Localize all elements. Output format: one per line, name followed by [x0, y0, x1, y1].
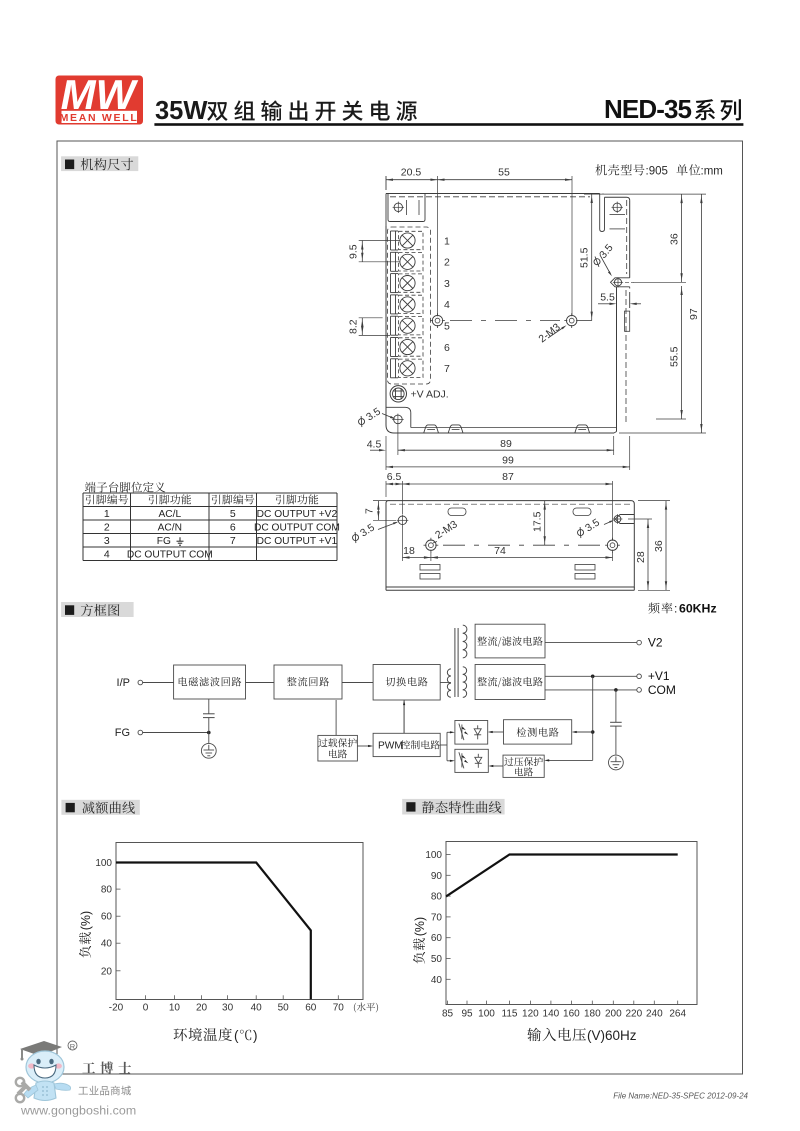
svg-text:100: 100 — [478, 1009, 495, 1020]
svg-text:AC/L: AC/L — [158, 509, 181, 520]
svg-text:70: 70 — [431, 912, 443, 923]
svg-text:(%): (%) — [79, 911, 93, 930]
svg-text:(: ( — [234, 1028, 239, 1043]
svg-text:4.5: 4.5 — [367, 439, 382, 451]
svg-text:R: R — [70, 1042, 76, 1051]
svg-text:1: 1 — [444, 235, 450, 247]
svg-text:55.5: 55.5 — [669, 346, 681, 367]
svg-text:5: 5 — [444, 321, 450, 333]
svg-text:40: 40 — [251, 1003, 263, 1014]
svg-text:+V1: +V1 — [648, 669, 670, 683]
svg-text:50: 50 — [431, 954, 443, 965]
svg-text:85: 85 — [442, 1009, 454, 1020]
svg-text:100: 100 — [95, 858, 112, 869]
svg-text:DC OUTPUT COM: DC OUTPUT COM — [254, 523, 340, 534]
svg-text:DC OUTPUT +V2: DC OUTPUT +V2 — [257, 509, 338, 520]
svg-text:4: 4 — [444, 299, 450, 311]
svg-text:220: 220 — [625, 1009, 642, 1020]
svg-text:20.5: 20.5 — [401, 167, 422, 179]
svg-text:FG: FG — [157, 536, 171, 547]
svg-text:I/P: I/P — [117, 677, 130, 689]
svg-text:30: 30 — [222, 1003, 234, 1014]
svg-text:264: 264 — [669, 1009, 686, 1020]
svg-text:140: 140 — [543, 1009, 560, 1020]
svg-text:180: 180 — [584, 1009, 601, 1020]
svg-text:18: 18 — [403, 545, 415, 557]
svg-text:70: 70 — [333, 1003, 345, 1014]
svg-text:36: 36 — [653, 540, 665, 552]
svg-text:100: 100 — [425, 850, 442, 861]
svg-text:95: 95 — [461, 1009, 473, 1020]
svg-text:17.5: 17.5 — [532, 511, 544, 532]
svg-text:DC OUTPUT COM: DC OUTPUT COM — [127, 550, 213, 561]
svg-text:60: 60 — [431, 933, 443, 944]
svg-text:55: 55 — [498, 167, 510, 179]
svg-text:6.5: 6.5 — [387, 471, 402, 483]
svg-text:40: 40 — [101, 939, 113, 950]
svg-text:20: 20 — [196, 1003, 208, 1014]
svg-text:89: 89 — [500, 438, 512, 450]
svg-text:2: 2 — [444, 257, 450, 269]
svg-text:28: 28 — [635, 551, 647, 563]
svg-text:5.5: 5.5 — [600, 292, 615, 304]
svg-text:COM: COM — [648, 683, 676, 697]
svg-text:File Name:NED-35-SPEC 2012-09: File Name:NED-35-SPEC 2012-09-24 — [613, 1092, 748, 1101]
svg-text:www.gongboshi.com: www.gongboshi.com — [20, 1104, 136, 1118]
svg-text:50: 50 — [278, 1003, 290, 1014]
svg-text::mm: :mm — [701, 166, 723, 178]
svg-text:3.5: 3.5 — [358, 521, 377, 539]
svg-text:160: 160 — [563, 1009, 580, 1020]
svg-text:74: 74 — [494, 545, 506, 557]
svg-text:7: 7 — [364, 508, 376, 514]
svg-text:60: 60 — [305, 1003, 317, 1014]
svg-text:3: 3 — [104, 535, 110, 547]
svg-text:7: 7 — [444, 363, 450, 375]
svg-text:51.5: 51.5 — [579, 247, 591, 268]
svg-text:+V ADJ.: +V ADJ. — [411, 389, 449, 401]
svg-text:7: 7 — [230, 535, 236, 547]
svg-text:3.5: 3.5 — [597, 242, 616, 261]
svg-text:2-M3: 2-M3 — [536, 321, 562, 345]
svg-text:9.5: 9.5 — [348, 244, 360, 259]
svg-text:DC OUTPUT +V1: DC OUTPUT +V1 — [257, 536, 338, 547]
svg-text:MEAN WELL: MEAN WELL — [60, 112, 139, 124]
svg-text:1: 1 — [104, 508, 110, 520]
svg-text:3.5: 3.5 — [364, 405, 383, 423]
svg-text:(V)60Hz: (V)60Hz — [587, 1028, 637, 1043]
svg-text:6: 6 — [444, 342, 450, 354]
svg-text:60: 60 — [101, 912, 113, 923]
svg-text:40: 40 — [431, 975, 443, 986]
svg-text:(%): (%) — [413, 917, 427, 936]
svg-text::: : — [674, 602, 677, 616]
svg-text:36: 36 — [669, 233, 681, 245]
svg-text:V2: V2 — [648, 636, 663, 650]
svg-text:200: 200 — [605, 1009, 622, 1020]
svg-text::905: :905 — [646, 166, 668, 178]
svg-text:3: 3 — [444, 278, 450, 290]
svg-text:5: 5 — [230, 508, 236, 520]
svg-text:NED-35: NED-35 — [604, 94, 692, 124]
svg-text:97: 97 — [688, 308, 700, 320]
svg-text:99: 99 — [502, 455, 514, 467]
svg-text:90: 90 — [431, 871, 443, 882]
svg-text:35W: 35W — [155, 97, 208, 125]
svg-text:115: 115 — [502, 1009, 518, 1020]
svg-text:FG: FG — [115, 727, 130, 739]
svg-text:8.2: 8.2 — [348, 319, 360, 334]
svg-text:10: 10 — [169, 1003, 181, 1014]
svg-text:0: 0 — [143, 1003, 149, 1014]
svg-text:): ) — [253, 1028, 258, 1043]
svg-text:2: 2 — [104, 522, 110, 534]
svg-text:3.5: 3.5 — [583, 516, 602, 534]
svg-text:87: 87 — [502, 471, 514, 483]
svg-text:2-M3: 2-M3 — [433, 518, 460, 541]
svg-text:80: 80 — [101, 885, 113, 896]
svg-text:4: 4 — [104, 549, 110, 561]
svg-text:240: 240 — [646, 1009, 663, 1020]
svg-text:120: 120 — [522, 1009, 539, 1020]
svg-text:6: 6 — [230, 522, 236, 534]
svg-text:80: 80 — [431, 892, 443, 903]
svg-text:-20: -20 — [109, 1003, 124, 1014]
svg-text:20: 20 — [101, 966, 113, 977]
svg-text:60KHz: 60KHz — [679, 602, 717, 616]
svg-text:AC/N: AC/N — [158, 523, 182, 534]
svg-text:PWM: PWM — [378, 741, 403, 752]
